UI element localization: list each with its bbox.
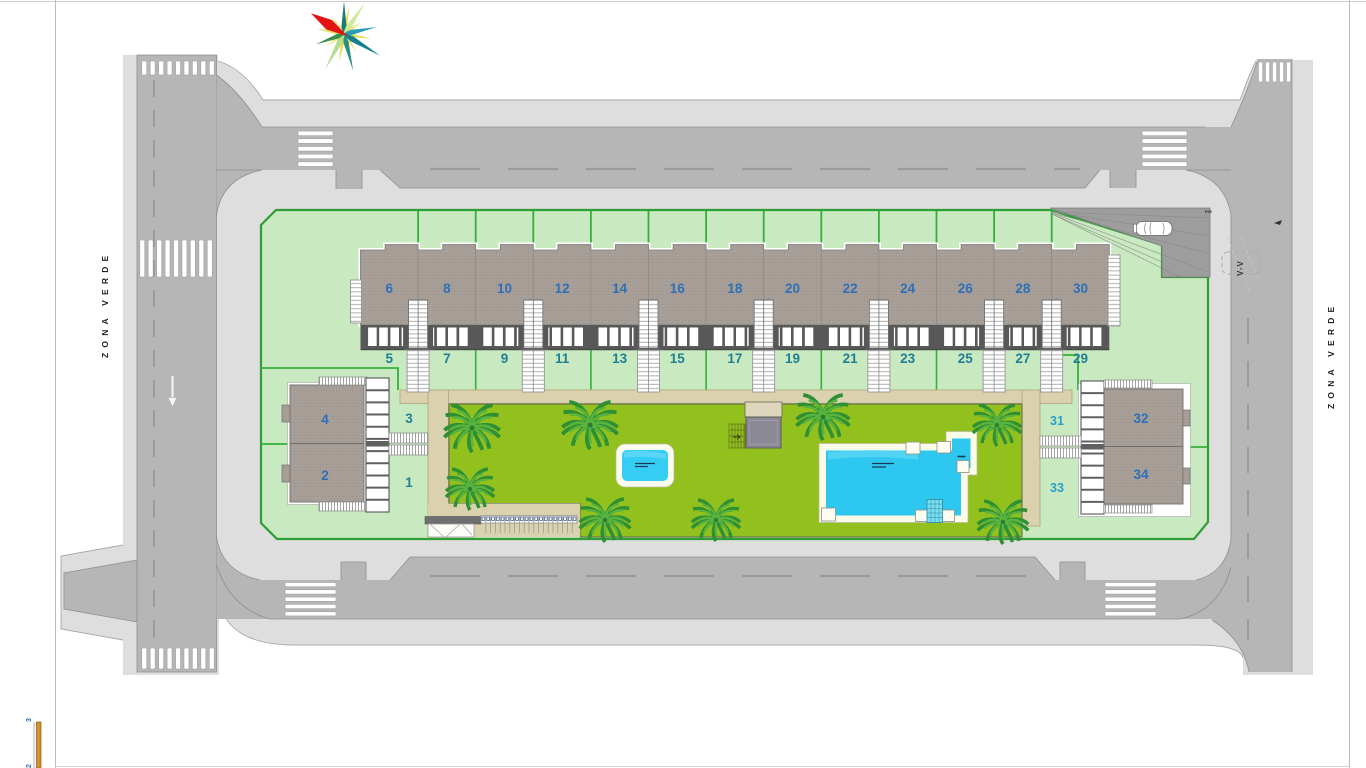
svg-text:31: 31 <box>1050 414 1064 428</box>
svg-text:22: 22 <box>843 281 858 296</box>
svg-text:ZONA VERDE: ZONA VERDE <box>1326 302 1336 409</box>
svg-text:20: 20 <box>785 281 800 296</box>
svg-text:18: 18 <box>727 281 743 296</box>
svg-text:4: 4 <box>321 412 329 427</box>
svg-text:6: 6 <box>386 281 394 296</box>
svg-text:2: 2 <box>26 764 33 768</box>
svg-text:3: 3 <box>405 411 413 426</box>
svg-text:27: 27 <box>1015 351 1030 366</box>
svg-text:14: 14 <box>612 281 628 296</box>
svg-text:3: 3 <box>26 718 33 722</box>
svg-text:7: 7 <box>443 351 451 366</box>
svg-text:24: 24 <box>900 281 916 296</box>
svg-text:16: 16 <box>670 281 686 296</box>
svg-text:11: 11 <box>555 351 570 366</box>
svg-text:26: 26 <box>958 281 974 296</box>
svg-text:13: 13 <box>612 351 628 366</box>
svg-text:V-V: V-V <box>1236 260 1245 276</box>
svg-text:1: 1 <box>405 475 413 490</box>
svg-text:34: 34 <box>1133 467 1149 482</box>
svg-text:33: 33 <box>1050 481 1064 495</box>
svg-text:ZONA VERDE: ZONA VERDE <box>100 251 110 358</box>
svg-text:12: 12 <box>555 281 570 296</box>
svg-text:21: 21 <box>843 351 859 366</box>
svg-text:P.M: P.M <box>1205 209 1212 214</box>
svg-text:17: 17 <box>727 351 742 366</box>
svg-text:10: 10 <box>497 281 512 296</box>
svg-text:15: 15 <box>670 351 686 366</box>
svg-text:29: 29 <box>1073 351 1088 366</box>
svg-text:32: 32 <box>1133 411 1148 426</box>
svg-text:23: 23 <box>900 351 916 366</box>
svg-text:2: 2 <box>321 468 329 483</box>
svg-text:9: 9 <box>501 351 509 366</box>
svg-text:19: 19 <box>785 351 800 366</box>
svg-text:5: 5 <box>386 351 394 366</box>
svg-text:8: 8 <box>443 281 451 296</box>
svg-text:25: 25 <box>958 351 974 366</box>
svg-text:28: 28 <box>1015 281 1031 296</box>
svg-text:30: 30 <box>1073 281 1088 296</box>
